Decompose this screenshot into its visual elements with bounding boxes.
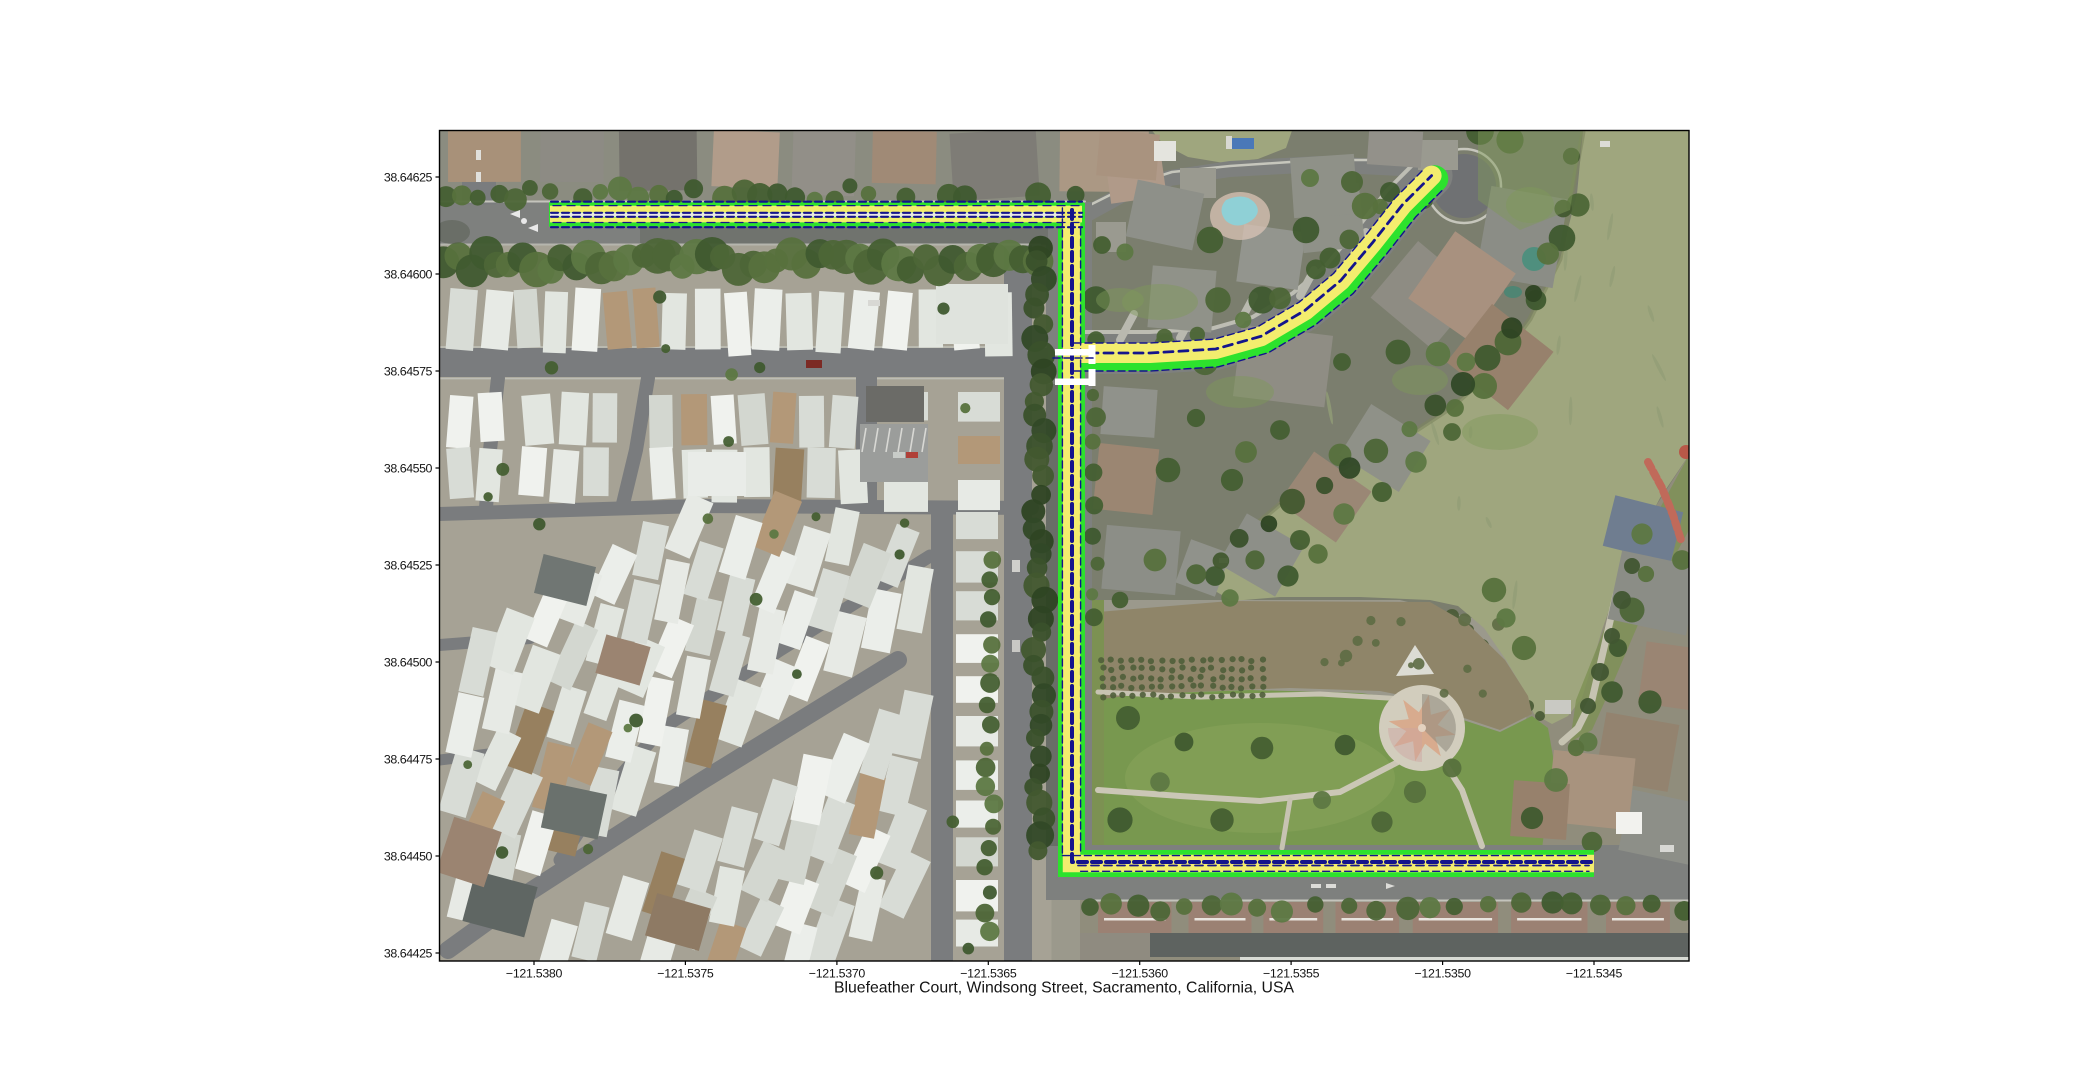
svg-text:−121.5365: −121.5365 — [960, 967, 1017, 981]
svg-text:−121.5375: −121.5375 — [657, 967, 714, 981]
svg-text:−121.5370: −121.5370 — [809, 967, 866, 981]
svg-text:38.64450: 38.64450 — [384, 849, 433, 863]
svg-text:−121.5355: −121.5355 — [1263, 967, 1320, 981]
svg-text:38.64475: 38.64475 — [384, 752, 433, 766]
svg-text:38.64500: 38.64500 — [384, 655, 433, 669]
svg-text:Bluefeather Court, Windsong St: Bluefeather Court, Windsong Street, Sacr… — [834, 980, 1295, 997]
svg-text:38.64425: 38.64425 — [384, 946, 433, 960]
svg-text:−121.5360: −121.5360 — [1112, 967, 1169, 981]
svg-text:38.64575: 38.64575 — [384, 364, 433, 378]
svg-text:−121.5350: −121.5350 — [1414, 967, 1471, 981]
svg-text:−121.5345: −121.5345 — [1566, 967, 1623, 981]
svg-text:38.64550: 38.64550 — [384, 461, 433, 475]
svg-text:38.64625: 38.64625 — [384, 170, 433, 184]
svg-text:38.64525: 38.64525 — [384, 558, 433, 572]
svg-text:−121.5380: −121.5380 — [506, 967, 563, 981]
svg-text:38.64600: 38.64600 — [384, 267, 433, 281]
